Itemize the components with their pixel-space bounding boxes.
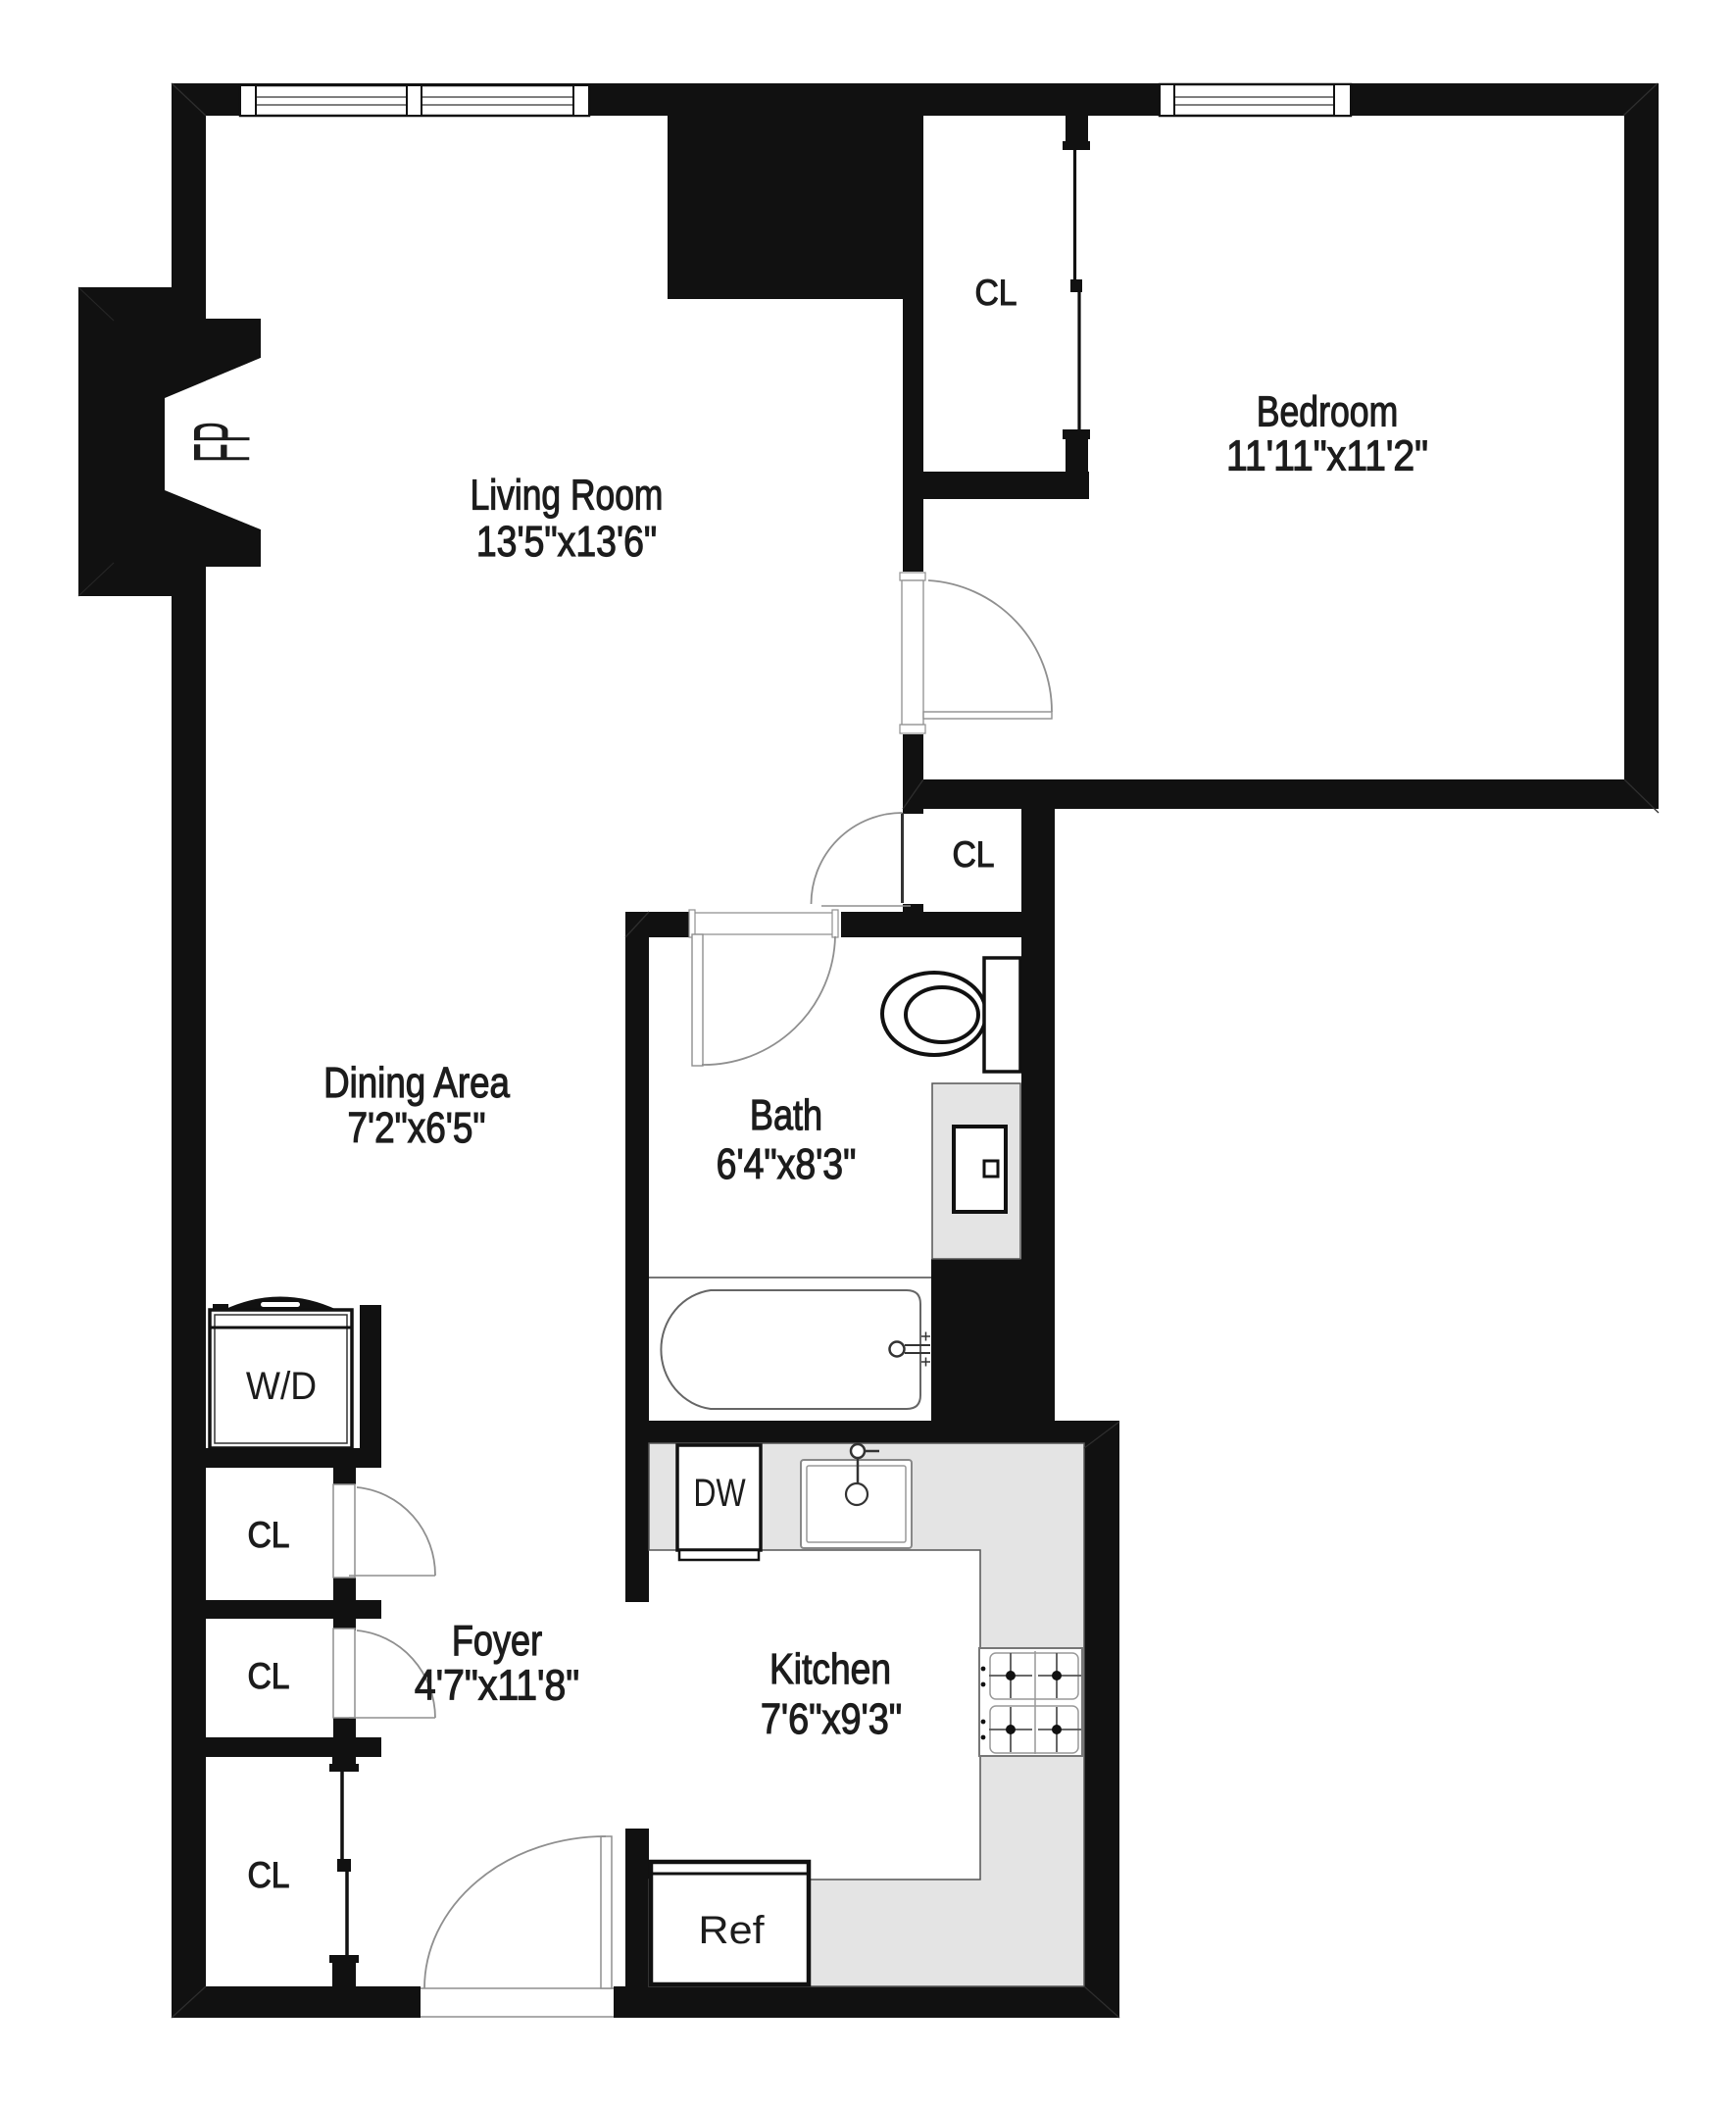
svg-text:7'6"x9'3": 7'6"x9'3" (761, 1694, 902, 1742)
svg-text:7'2"x6'5": 7'2"x6'5" (347, 1103, 485, 1152)
svg-text:Kitchen: Kitchen (769, 1644, 891, 1693)
svg-text:CL: CL (247, 1856, 289, 1896)
svg-text:W/D: W/D (246, 1365, 317, 1409)
svg-text:Ref: Ref (698, 1907, 765, 1951)
svg-text:11'11"x11'2": 11'11"x11'2" (1226, 430, 1428, 479)
svg-text:DW: DW (693, 1470, 746, 1514)
svg-text:Dining Area: Dining Area (323, 1058, 510, 1107)
svg-text:FP: FP (177, 422, 268, 463)
svg-text:Foyer: Foyer (452, 1616, 542, 1664)
svg-text:CL: CL (952, 835, 994, 876)
svg-text:Living Room: Living Room (471, 472, 664, 519)
svg-text:13'5"x13'6": 13'5"x13'6" (476, 517, 657, 566)
svg-text:Bath: Bath (750, 1090, 822, 1138)
svg-text:Bedroom: Bedroom (1257, 388, 1399, 435)
svg-text:6'4"x8'3": 6'4"x8'3" (717, 1139, 857, 1188)
svg-text:CL: CL (247, 1657, 289, 1697)
svg-text:CL: CL (974, 274, 1017, 314)
svg-text:4'7"x11'8": 4'7"x11'8" (415, 1660, 579, 1709)
svg-text:CL: CL (247, 1516, 289, 1556)
